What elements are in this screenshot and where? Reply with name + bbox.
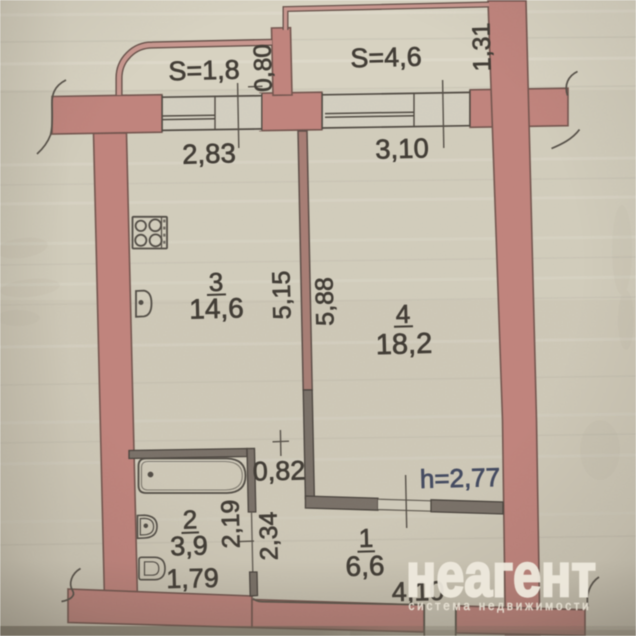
- svg-text:система недвижимости: система недвижимости: [409, 599, 592, 613]
